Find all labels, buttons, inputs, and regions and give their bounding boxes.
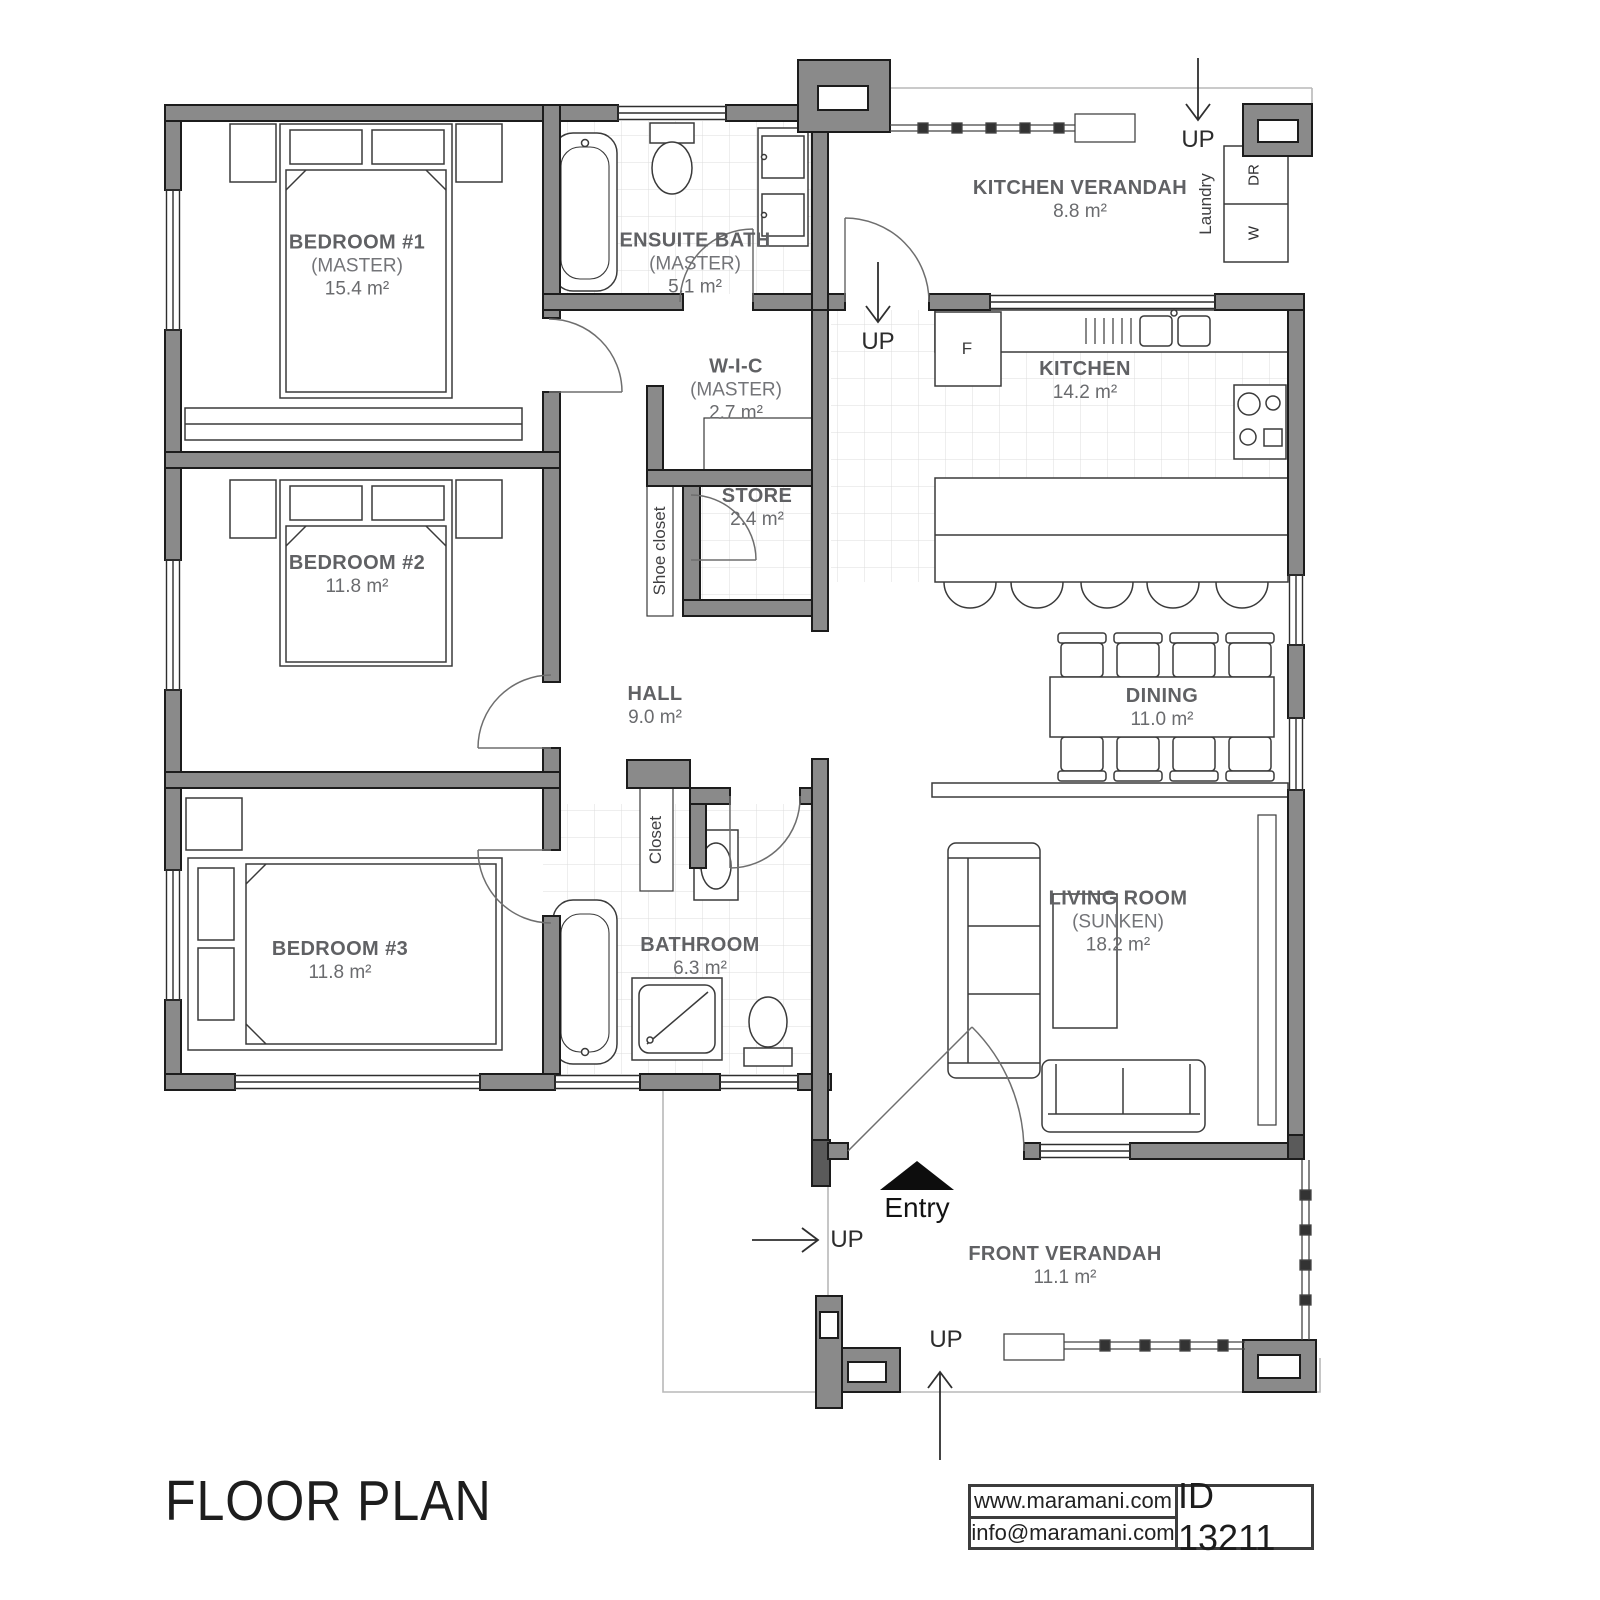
shoe-closet-label: Shoe closet: [650, 507, 670, 596]
up-arrow-top: [1186, 58, 1210, 120]
room-area: 9.0 m²: [628, 706, 683, 729]
room-area: 11.0 m²: [1126, 708, 1198, 731]
up-arrow-verandah: [928, 1372, 952, 1460]
room-area: 14.2 m²: [1039, 381, 1131, 404]
up-label-top: UP: [1181, 126, 1214, 154]
room-name: BATHROOM: [640, 934, 759, 957]
room-sub: (MASTER): [619, 253, 770, 276]
room-sub: (SUNKEN): [1049, 911, 1188, 934]
room-label-living: LIVING ROOM (SUNKEN) 18.2 m²: [1049, 888, 1188, 957]
bathroom-bathtub: [553, 900, 617, 1064]
shower: [632, 978, 722, 1060]
wic-shelf: [704, 418, 812, 470]
room-name: STORE: [722, 485, 793, 508]
ensuite-bathtub: [553, 133, 617, 291]
page-title: FLOOR PLAN: [165, 1468, 492, 1534]
room-sub: (MASTER): [690, 379, 782, 402]
room-area: 2.4 m²: [722, 508, 793, 531]
up-label-verandah: UP: [929, 1326, 962, 1354]
up-label-entry-side: UP: [830, 1226, 863, 1254]
room-name: W-I-C: [690, 356, 782, 379]
room-area: 11.1 m²: [968, 1266, 1161, 1289]
stove: [1234, 385, 1286, 459]
loveseat: [1042, 1060, 1205, 1132]
room-label-bedroom1: BEDROOM #1 (MASTER) 15.4 m²: [289, 232, 425, 301]
room-name: DINING: [1126, 685, 1198, 708]
room-area: 5.1 m²: [619, 276, 770, 299]
room-label-wic: W-I-C (MASTER) 2.7 m²: [690, 356, 782, 425]
bed-3: [186, 798, 502, 1050]
sofa-3-seat: [948, 843, 1040, 1078]
room-name: ENSUITE BATH: [619, 230, 770, 253]
room-label-bedroom3: BEDROOM #3 11.8 m²: [272, 938, 408, 984]
room-name: KITCHEN: [1039, 358, 1131, 381]
room-label-bathroom: BATHROOM 6.3 m²: [640, 934, 759, 980]
dining-set: [932, 633, 1288, 797]
room-name: BEDROOM #1: [289, 232, 425, 255]
room-label-dining: DINING 11.0 m²: [1126, 685, 1198, 731]
room-label-front-verandah: FRONT VERANDAH 11.1 m²: [968, 1243, 1161, 1289]
washer-label: W: [1246, 226, 1263, 240]
room-name: BEDROOM #3: [272, 938, 408, 961]
closet-label: Closet: [646, 816, 666, 864]
up-arrow-entry-side: [752, 1228, 818, 1252]
branding-website: www.maramani.com: [971, 1487, 1175, 1516]
laundry-label: Laundry: [1196, 173, 1216, 234]
tv-console: [1258, 815, 1276, 1125]
branding-contacts: www.maramani.com info@maramani.com: [971, 1487, 1178, 1547]
room-area: 11.8 m²: [272, 961, 408, 984]
ensuite-vanity: [758, 128, 808, 246]
dryer-label: DR: [1246, 164, 1263, 186]
room-area: 15.4 m²: [289, 278, 425, 301]
room-sub: (MASTER): [289, 255, 425, 278]
room-label-bedroom2: BEDROOM #2 11.8 m²: [289, 552, 425, 598]
room-label-kitchen-verandah: KITCHEN VERANDAH 8.8 m²: [973, 177, 1187, 223]
entry-label: Entry: [884, 1192, 949, 1224]
branding-email: info@maramani.com: [971, 1516, 1175, 1548]
room-area: 8.8 m²: [973, 200, 1187, 223]
room-label-kitchen: KITCHEN 14.2 m²: [1039, 358, 1131, 404]
floor-plan-drawing: [0, 0, 1600, 1600]
plan-id: ID 13211: [1178, 1487, 1311, 1547]
up-label-kitchen: UP: [861, 328, 894, 356]
room-label-store: STORE 2.4 m²: [722, 485, 793, 531]
bar-stools: [944, 582, 1268, 608]
ensuite-toilet: [650, 123, 694, 194]
floor-plan-page: BEDROOM #1 (MASTER) 15.4 m² ENSUITE BATH…: [0, 0, 1600, 1600]
room-area: 6.3 m²: [640, 957, 759, 980]
branding-box: www.maramani.com info@maramani.com ID 13…: [968, 1484, 1314, 1550]
room-name: KITCHEN VERANDAH: [973, 177, 1187, 200]
fridge-label: F: [962, 339, 972, 359]
room-label-hall: HALL 9.0 m²: [628, 683, 683, 729]
room-name: FRONT VERANDAH: [968, 1243, 1161, 1266]
room-area: 18.2 m²: [1049, 934, 1188, 957]
room-name: HALL: [628, 683, 683, 706]
room-area: 2.7 m²: [690, 402, 782, 425]
room-name: LIVING ROOM: [1049, 888, 1188, 911]
entry-arrow: [880, 1161, 954, 1190]
room-area: 11.8 m²: [289, 575, 425, 598]
kitchen-island: [935, 478, 1288, 582]
room-name: BEDROOM #2: [289, 552, 425, 575]
room-label-ensuite: ENSUITE BATH (MASTER) 5.1 m²: [619, 230, 770, 299]
